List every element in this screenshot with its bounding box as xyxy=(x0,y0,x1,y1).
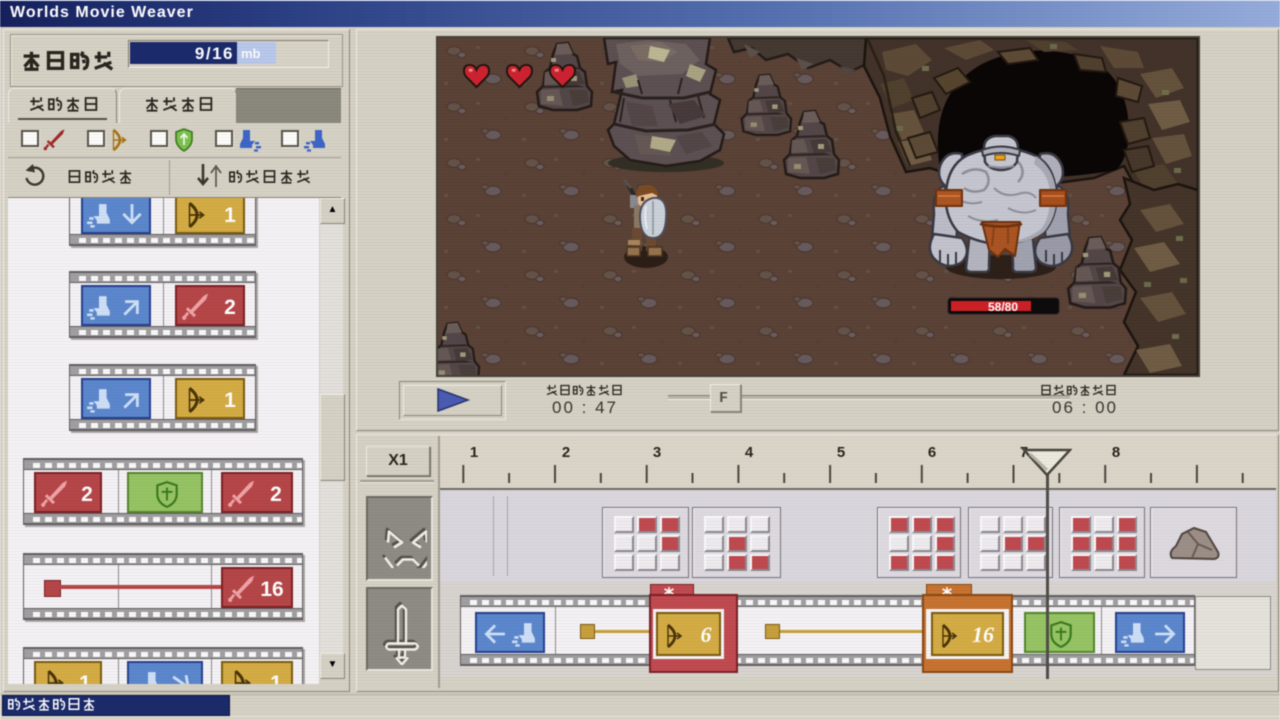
svg-text:2: 2 xyxy=(562,444,570,461)
svg-text:58/80: 58/80 xyxy=(988,300,1018,314)
svg-text:3: 3 xyxy=(653,444,661,461)
svg-text:5: 5 xyxy=(837,444,845,461)
svg-text:6: 6 xyxy=(928,444,936,461)
svg-text:8: 8 xyxy=(1112,444,1120,461)
svg-text:4: 4 xyxy=(745,444,754,461)
svg-text:1: 1 xyxy=(470,444,478,461)
